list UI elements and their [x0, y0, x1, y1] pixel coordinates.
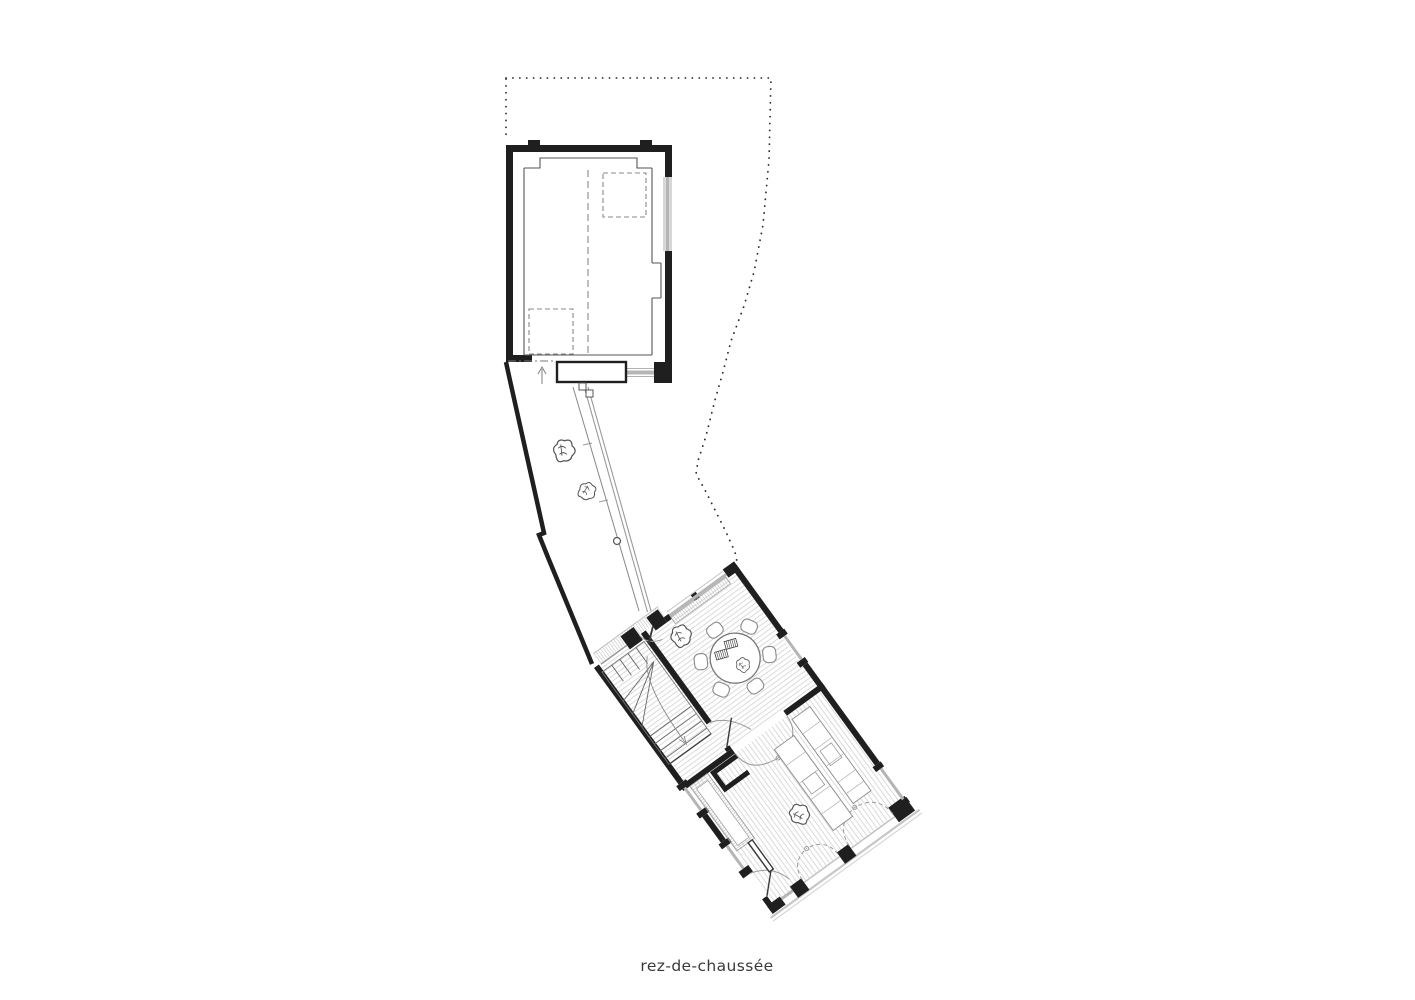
- garage-skylight-dashed: [529, 309, 573, 354]
- floor-plan-canvas: rez-de-chaussée: [0, 0, 1415, 1000]
- fence-gate-post: [579, 383, 586, 390]
- main-house: [584, 552, 922, 921]
- garage-pilaster: [528, 140, 540, 145]
- garage-window-south: [626, 369, 654, 377]
- fence-gate-post: [586, 390, 593, 397]
- floor-caption: rez-de-chaussée: [640, 957, 773, 975]
- garden-fence: [583, 387, 651, 612]
- dining-chair: [694, 653, 709, 670]
- garage-pilaster: [640, 140, 652, 145]
- courtyard-plant-icon: [554, 440, 576, 462]
- garage-entry-threshold: [557, 362, 626, 382]
- garage-walls: [506, 140, 672, 383]
- entry-direction-arrow: [538, 367, 546, 384]
- garage-window-east: [664, 177, 671, 251]
- floor-plan-page: rez-de-chaussée: [0, 0, 1415, 1000]
- fence-post-circle: [614, 538, 621, 545]
- garage-building: [506, 140, 672, 384]
- garage-inner-wall-lines: [524, 158, 661, 355]
- courtyard: [506, 362, 651, 664]
- garage-skylight-dashed: [603, 173, 646, 217]
- dining-chair: [762, 646, 777, 663]
- courtyard-plant-icon: [575, 479, 599, 503]
